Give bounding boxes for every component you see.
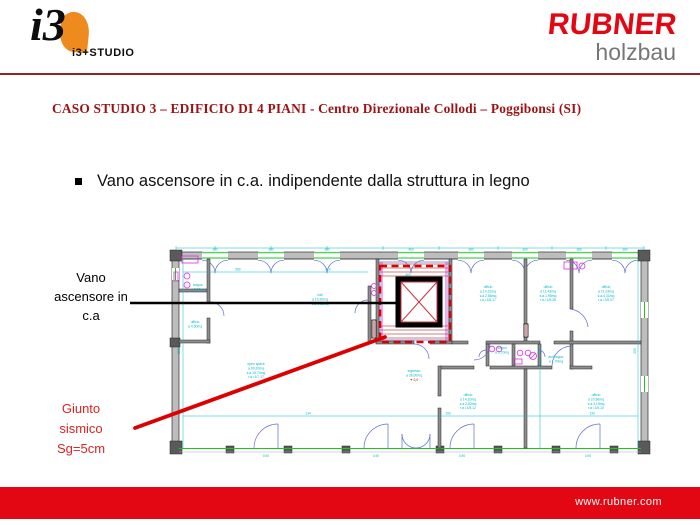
- plan-core: [372, 262, 451, 342]
- callout-line: ascensore in: [36, 287, 146, 306]
- logo-rubner: RUBNER holzbau: [548, 10, 676, 64]
- rubner-division-label: holzbau: [548, 40, 676, 64]
- footer-url: www.rubner.com: [575, 496, 662, 508]
- plan-glazing: [179, 449, 641, 453]
- callout-line: Giunto: [33, 399, 129, 419]
- plan-dimension: 250: [633, 348, 637, 354]
- bullet-text: Vano ascensore in c.a. indipendente dall…: [97, 172, 530, 191]
- footer-bar: www.rubner.com: [0, 487, 700, 519]
- plan-room-label: bagnoa 3,60mq: [191, 283, 205, 291]
- plan-dimension: 410: [325, 268, 331, 272]
- plan-dimension: 380: [324, 247, 330, 251]
- plan-dimension: 380: [622, 247, 628, 251]
- plan-room-label: bagnoa 3,70mq: [495, 346, 509, 354]
- plan-room-label: ufficioa 4,50mq: [188, 320, 202, 328]
- floor-plan-drawing: ufficioa 4,50mqbagnoa 3,60mqopen spacea …: [168, 246, 652, 460]
- plan-dimension: 0,90: [263, 454, 269, 458]
- plan-dimension: 0,90: [459, 454, 465, 458]
- bullet-icon: [75, 178, 82, 185]
- callout-line: Sg=5cm: [33, 439, 129, 459]
- plan-room-label: ufficioa 14,10mqs.a.2,82mqr.a.i 1/5,12: [460, 393, 477, 410]
- callout-line: sismico: [33, 419, 129, 439]
- plan-room-label: ufficioa 14,31mqs.a.2,86mqr.a.i 1/5,17: [480, 285, 497, 302]
- plan-room-label: open spacea 99,20mqs.a.15,74mqr.a.i 1/7,…: [247, 362, 266, 379]
- plan-room-label: ufficioa 20,96mqs.a.4,19mqr.a.i 1/5,10: [588, 393, 605, 410]
- plan-room-label: ingressoa 36,00mq: [406, 369, 422, 377]
- plan-dimension: 380: [268, 247, 274, 251]
- plan-dimension: 0,90: [373, 454, 379, 458]
- logo-i3-studio: i3 i3+STUDIO: [28, 10, 178, 64]
- plan-room-label: ufficioa 21,03mqs.a.4,31mqr.a.i 1/5,07: [598, 285, 615, 302]
- header-separator: [0, 73, 700, 75]
- plan-dimension: 250: [177, 348, 181, 354]
- callout-line: Vano: [36, 268, 146, 287]
- callout-vano-ascensore: Vano ascensore in c.a: [36, 268, 146, 325]
- plan-dimension: 460: [405, 273, 411, 277]
- plan-dimension: 460: [408, 247, 414, 251]
- plan-dimension: 134: [305, 412, 311, 416]
- i3-logo-caption: i3+STUDIO: [72, 47, 135, 59]
- plan-dimension: 380: [522, 247, 528, 251]
- plan-dimension: 380: [212, 247, 218, 251]
- plan-room-label: antibagnoa 1,70mq: [549, 355, 564, 363]
- rubner-wordmark: RUBNER: [546, 10, 677, 40]
- plan-dimension: 380: [576, 247, 582, 251]
- i3-logo-mark: i3: [30, 0, 66, 51]
- plan-room-label: ✦ 0,0: [410, 378, 419, 382]
- plan-dimension: 580: [235, 268, 241, 272]
- plan-room-label: ufficioa 11,43mqs.a.1,96mqr.a.i 1/5,28: [540, 285, 557, 302]
- plan-dimension: 380: [468, 247, 474, 251]
- slide-title: CASO STUDIO 3 – EDIFICIO DI 4 PIANI - Ce…: [52, 101, 688, 117]
- slide-root: i3 i3+STUDIO RUBNER holzbau CASO STUDIO …: [0, 0, 700, 525]
- bullet-row: Vano ascensore in c.a. indipendente dall…: [75, 172, 655, 191]
- callout-line: c.a: [36, 306, 146, 325]
- plan-dimension: 0,90: [585, 454, 591, 458]
- plan-room-label: halla 19,30mqs.a.3,86mq: [312, 293, 329, 306]
- plan-dimension: 150: [445, 412, 451, 416]
- callout-giunto-sismico: Giunto sismico Sg=5cm: [33, 399, 129, 459]
- plan-dimension: 130: [589, 412, 595, 416]
